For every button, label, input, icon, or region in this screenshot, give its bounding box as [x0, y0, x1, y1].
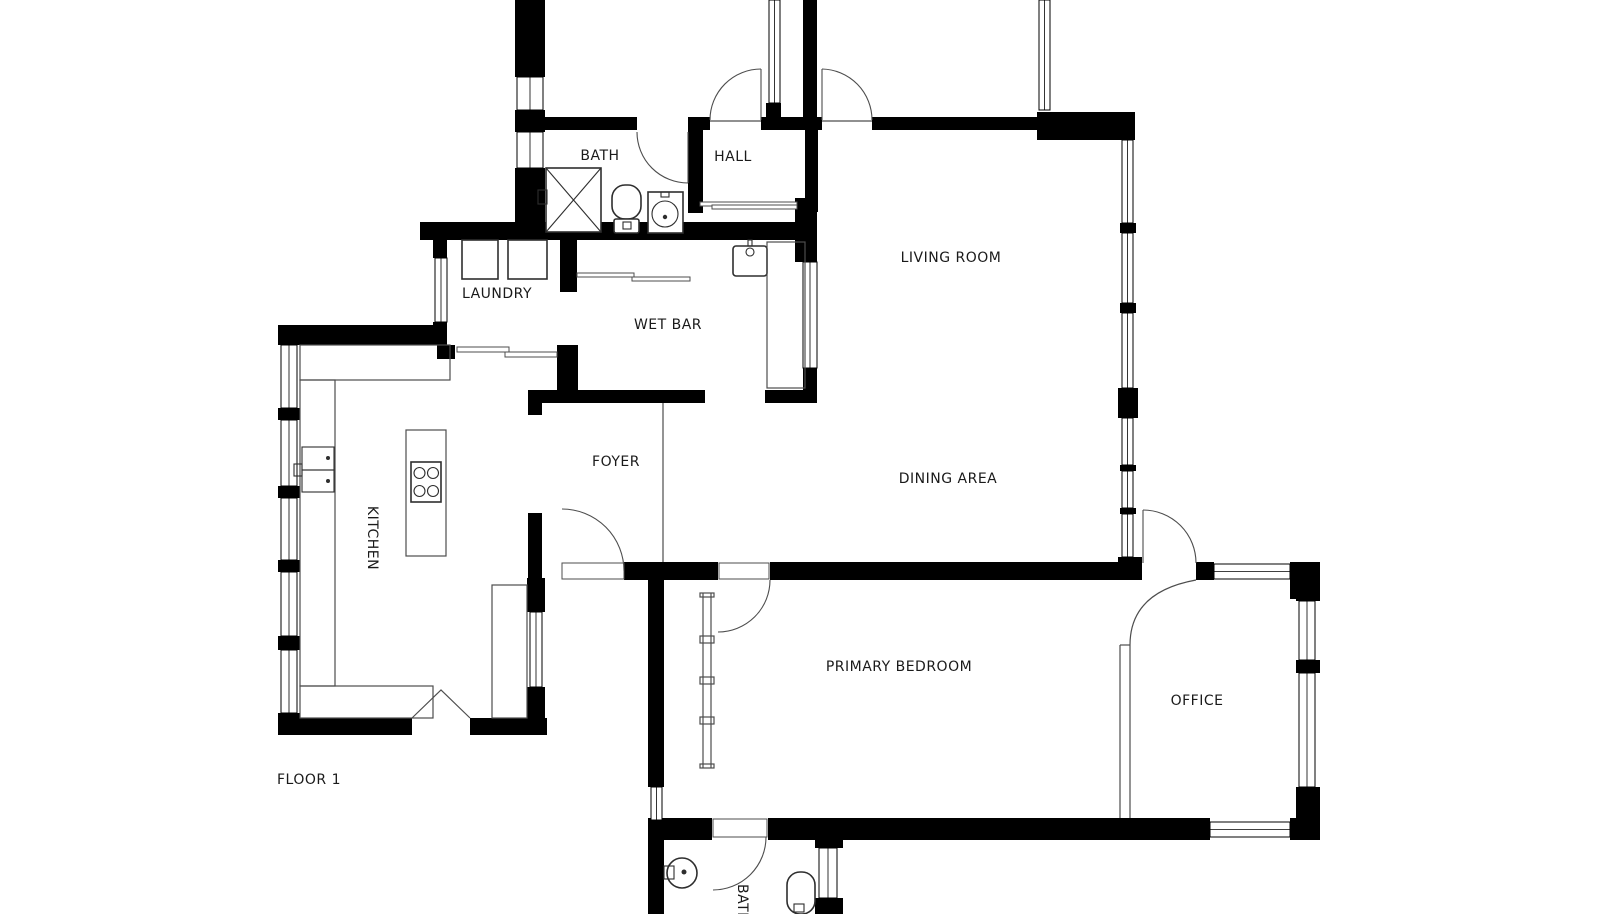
- room-label-office: OFFICE: [1171, 693, 1224, 709]
- window: [1214, 564, 1290, 579]
- kitchen-island: [406, 430, 446, 556]
- room-label-dining-area: DINING AREA: [899, 471, 998, 487]
- sliding-door-laundry: [457, 347, 557, 357]
- room-label-primary-bedroom: PRIMARY BEDROOM: [826, 659, 972, 675]
- toilet-icon-lower: [787, 872, 815, 914]
- window: [517, 77, 543, 110]
- window: [1122, 514, 1133, 557]
- window: [517, 132, 543, 168]
- window: [281, 650, 297, 713]
- window: [281, 572, 297, 636]
- door-top-middle-room: [822, 69, 872, 121]
- door-bath: [637, 132, 688, 183]
- washer-icon: [462, 240, 498, 279]
- room-label-foyer: FOYER: [592, 454, 640, 470]
- door-top-left-room: [710, 69, 761, 121]
- room-label-laundry: LAUNDRY: [462, 286, 532, 302]
- room-label-bath: BATH: [580, 148, 619, 164]
- room-label-hall: HALL: [714, 149, 752, 165]
- sliding-door-wet-bar: [577, 273, 690, 281]
- window: [1210, 822, 1290, 837]
- room-label-kitchen: KITCHEN: [364, 506, 380, 570]
- floor-label: FLOOR 1: [277, 772, 341, 788]
- window: [1122, 471, 1133, 508]
- door-lower-bath: [713, 819, 767, 890]
- window: [1122, 418, 1133, 465]
- room-label-bath-lower: BATH: [734, 884, 750, 914]
- window: [1299, 601, 1315, 660]
- floor-plan: BATH HALL LIVING ROOM LAUNDRY WET BAR FO…: [0, 0, 1600, 914]
- window: [281, 345, 297, 408]
- bath-sink-icon: [648, 192, 683, 233]
- front-door: [562, 509, 624, 579]
- window: [1122, 140, 1133, 223]
- window: [819, 848, 837, 898]
- window: [530, 612, 542, 687]
- room-label-wet-bar: WET BAR: [634, 317, 702, 333]
- dryer-icon: [508, 240, 547, 279]
- closet-slider: [700, 593, 714, 768]
- window: [435, 258, 447, 322]
- shower-icon: [538, 168, 601, 232]
- window: [651, 787, 662, 820]
- wet-bar-sink-icon: [733, 240, 767, 276]
- floor-plan-canvas: BATH HALL LIVING ROOM LAUNDRY WET BAR FO…: [0, 0, 1600, 914]
- room-label-living-room: LIVING ROOM: [901, 250, 1002, 266]
- windows: [281, 0, 1315, 898]
- door-office: [1143, 510, 1196, 563]
- door-primary-bedroom: [718, 563, 770, 632]
- window: [1039, 0, 1050, 110]
- window: [1122, 313, 1133, 388]
- toilet-icon: [612, 185, 641, 233]
- window: [281, 498, 297, 560]
- porch-planter: [492, 585, 527, 718]
- wet-bar-counter: [767, 242, 805, 388]
- sliding-door-hall: [700, 202, 797, 209]
- window: [769, 0, 780, 103]
- window: [1299, 673, 1315, 787]
- round-sink-icon: [664, 858, 697, 888]
- walls: [278, 0, 1320, 914]
- entry-opening-chevron: [412, 690, 470, 718]
- window: [1122, 233, 1133, 303]
- stove-icon: [411, 462, 441, 502]
